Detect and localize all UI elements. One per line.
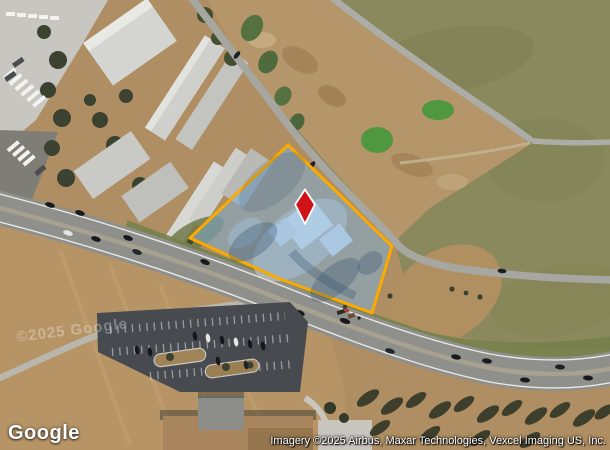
imagery-attribution: Imagery ©2025 Airbus, Maxar Technologies…	[270, 435, 606, 447]
satellite-map-viewport[interactable]: ©2025 Google Google Imagery ©2025 Airbus…	[0, 0, 610, 450]
satellite-imagery[interactable]	[0, 0, 610, 450]
google-logo[interactable]: Google	[8, 422, 80, 445]
